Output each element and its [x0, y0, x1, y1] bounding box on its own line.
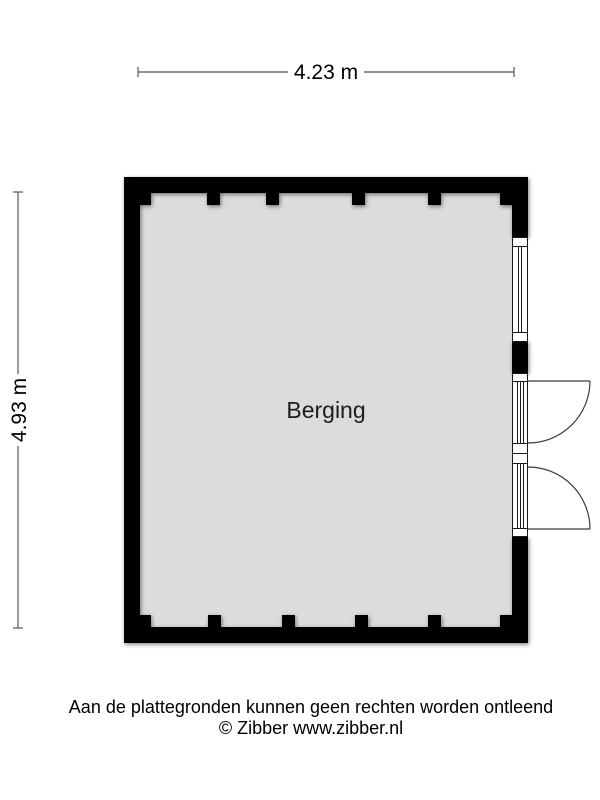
window-frame — [513, 238, 528, 342]
window — [513, 238, 528, 342]
wall-stud — [428, 193, 441, 205]
door-swings — [528, 381, 590, 529]
wall-stud — [355, 615, 368, 627]
disclaimer-text: Aan de plattegronden kunnen geen rechten… — [22, 697, 600, 718]
wall-stud — [138, 193, 151, 205]
wall-right-lower — [512, 537, 528, 643]
dimension-width: 4.23 m — [138, 61, 514, 84]
dimension-height-label: 4.93 m — [8, 378, 31, 442]
footer: Aan de plattegronden kunnen geen rechten… — [22, 697, 600, 739]
floorplan-page: 4.23 m 4.93 m Berging Aan de plattegrond… — [0, 0, 600, 800]
wall-stud — [428, 615, 441, 627]
room-label: Berging — [286, 397, 365, 423]
wall-stud — [266, 193, 279, 205]
wall-top — [124, 177, 528, 193]
double-door — [513, 374, 528, 537]
dimension-height: 4.93 m — [8, 192, 31, 628]
door-swing-arc-bottom — [528, 467, 590, 529]
wall-left — [124, 177, 140, 643]
door-swing-arc-top — [528, 381, 590, 443]
floorplan-drawing: 4.23 m 4.93 m Berging — [0, 0, 600, 800]
wall-right-upper — [512, 177, 528, 237]
wall-bottom — [124, 627, 528, 643]
wall-stud — [500, 193, 512, 205]
wall-right-middle — [512, 341, 528, 373]
wall-stud — [500, 615, 512, 627]
wall-stud — [352, 193, 365, 205]
wall-stud — [282, 615, 295, 627]
credit-text: © Zibber www.zibber.nl — [22, 718, 600, 739]
wall-stud — [207, 193, 220, 205]
dimension-width-label: 4.23 m — [294, 61, 358, 84]
wall-stud — [138, 615, 151, 627]
wall-stud — [208, 615, 221, 627]
